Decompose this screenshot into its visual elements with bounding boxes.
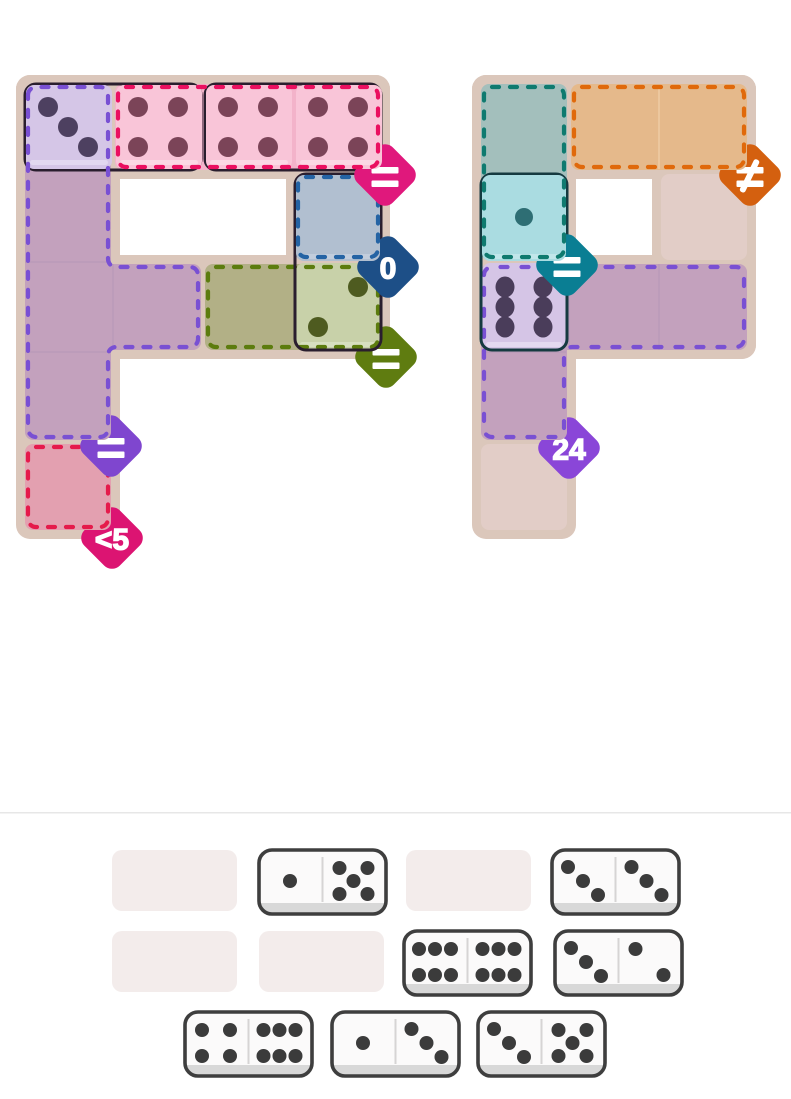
svg-text:0: 0 [380, 253, 397, 286]
